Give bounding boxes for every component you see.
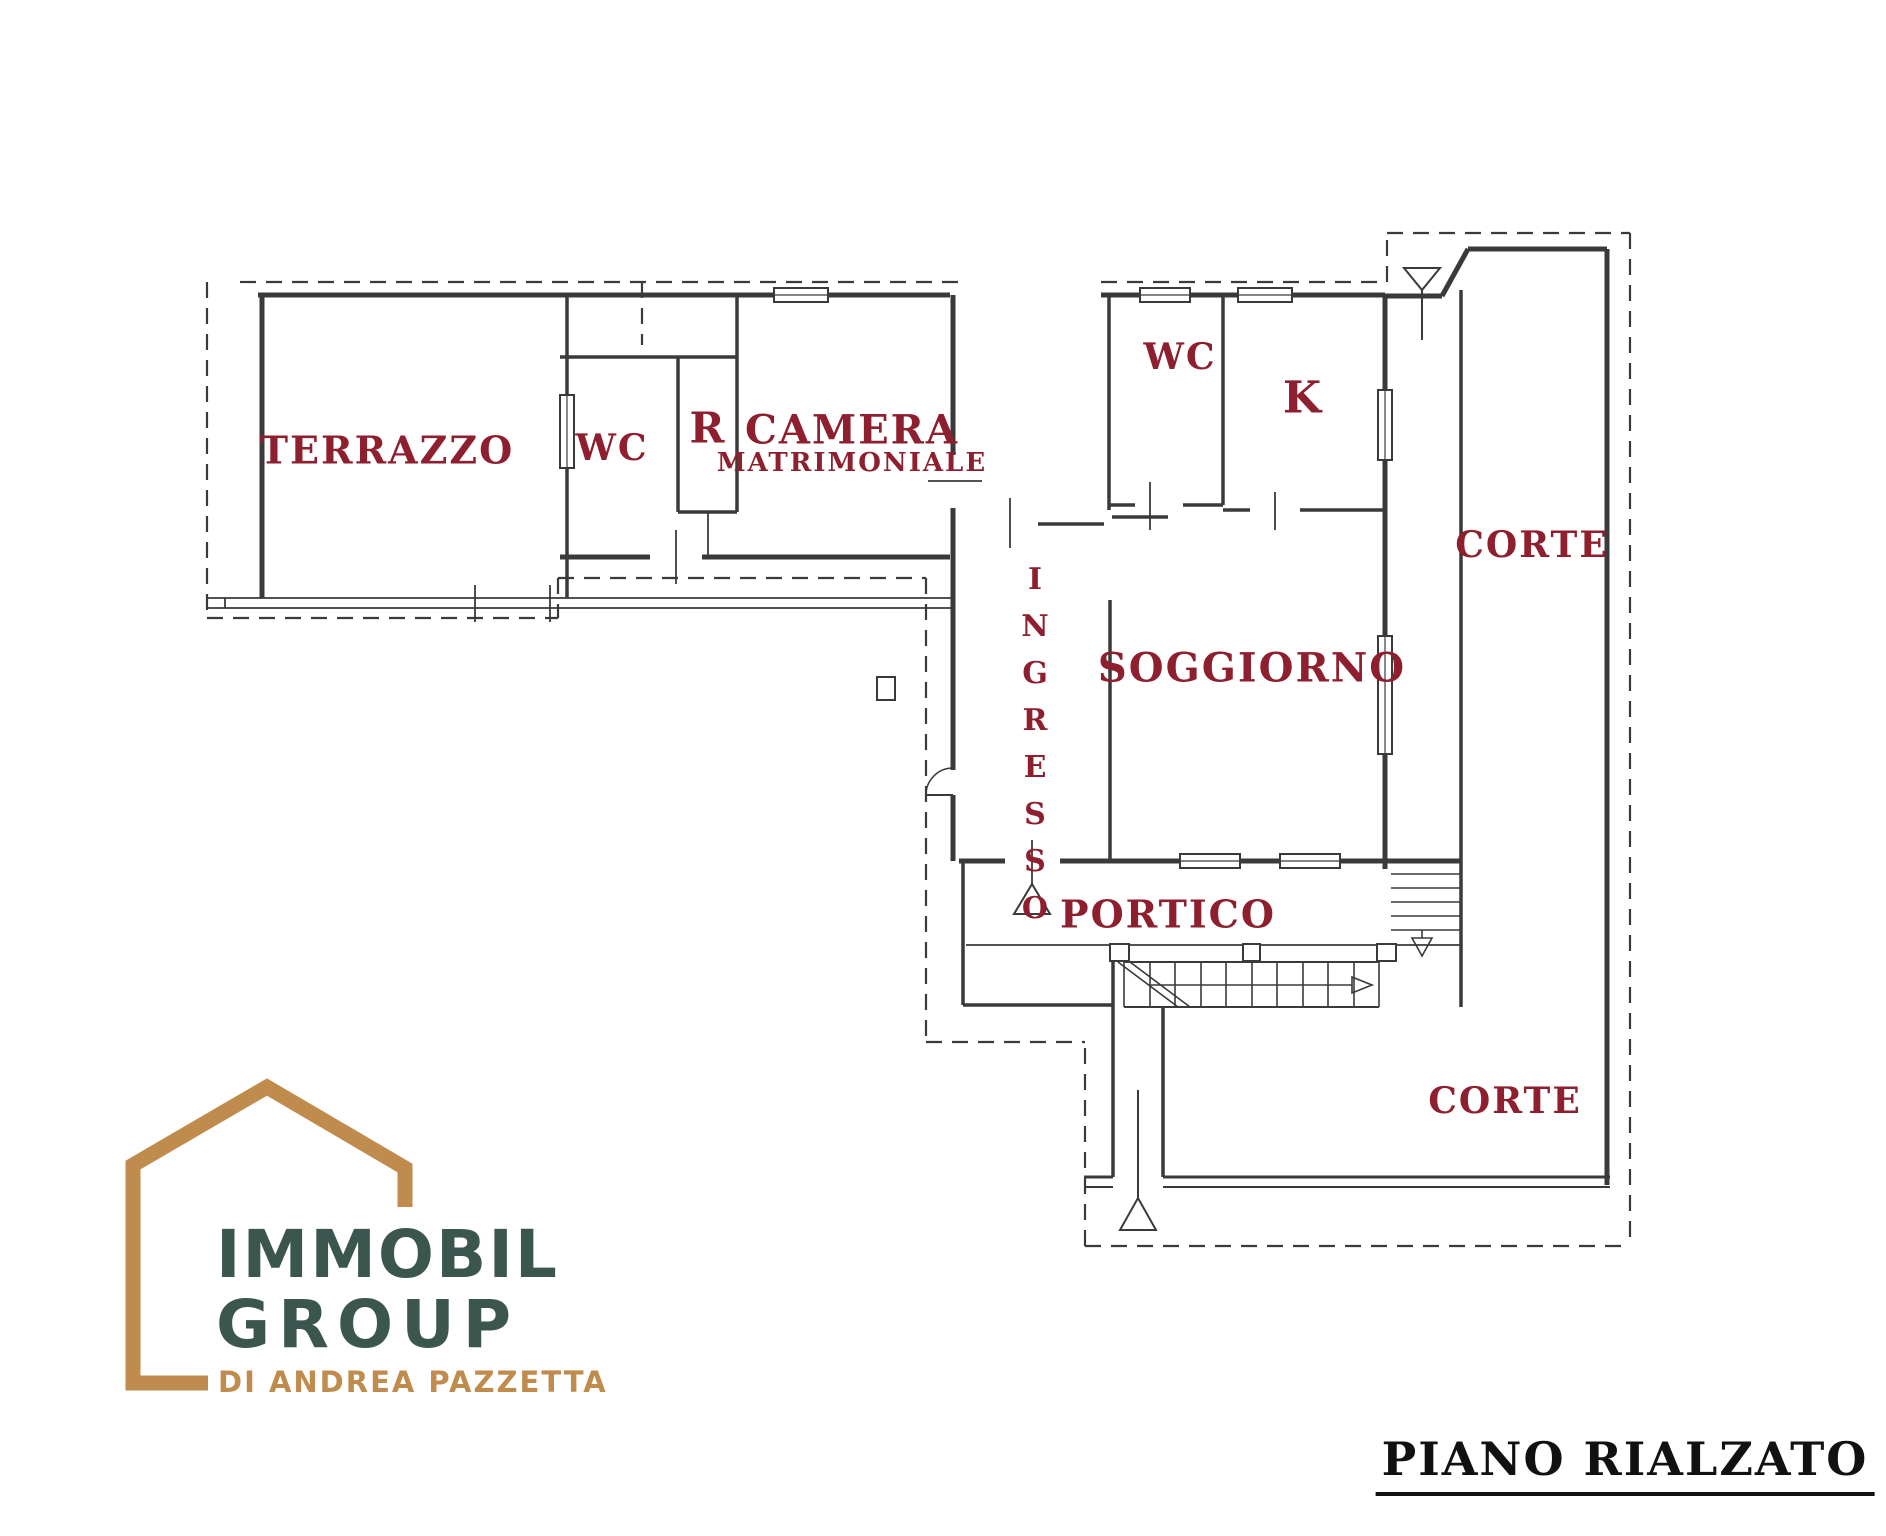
logo-group: GROUP (216, 1292, 519, 1358)
room-label-soggiorno: SOGGIORNO (1098, 645, 1406, 692)
windows (560, 288, 1392, 868)
logo-immobil: IMMOBIL (216, 1222, 559, 1288)
logo-tagline: DI ANDREA PAZZETTA (218, 1368, 608, 1397)
pillar (877, 677, 895, 700)
property-boundary-dashed (207, 233, 1630, 1246)
entrance-markers (1014, 268, 1440, 1230)
outer-walls (258, 249, 1607, 1185)
side-stairs (1391, 874, 1461, 956)
room-label-terrazzo: TERRAZZO (260, 428, 514, 473)
floorplan-page: TERRAZZO WC R CAMERA MATRIMONIALE WC K C… (0, 0, 1886, 1536)
room-label-camera: CAMERA (745, 407, 959, 454)
room-label-corte-bottom: CORTE (1428, 1080, 1582, 1122)
main-stairs (1118, 962, 1379, 1007)
room-label-r: R (690, 404, 727, 453)
room-label-portico: PORTICO (1060, 892, 1276, 937)
portico-columns (1110, 944, 1396, 961)
room-label-corte-top: CORTE (1455, 524, 1609, 566)
plan-title: PIANO RIALZATO (1376, 1432, 1875, 1496)
room-label-camera-sub: MATRIMONIALE (717, 448, 987, 478)
room-label-wc-left: WC (575, 427, 648, 469)
door-swing (926, 768, 953, 795)
stairs-arrow-head (1352, 977, 1372, 993)
room-label-ingresso: INGRESSO (1018, 562, 1053, 938)
room-label-k: K (1283, 373, 1323, 424)
courtyard-walls (1084, 1177, 1610, 1187)
room-label-wc-right: WC (1143, 336, 1216, 378)
